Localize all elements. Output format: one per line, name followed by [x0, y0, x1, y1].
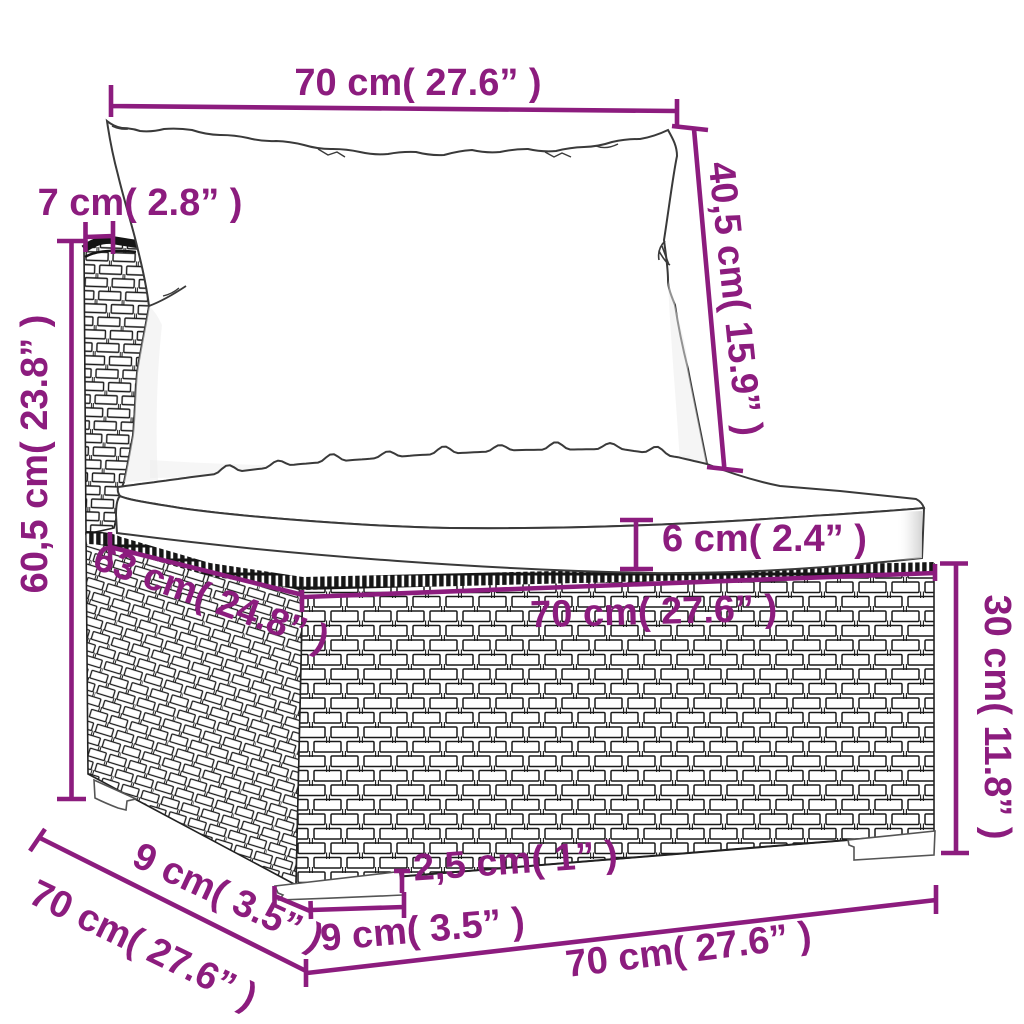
svg-text:6 cm( 2.4” ): 6 cm( 2.4” ) [662, 518, 867, 560]
svg-text:60,5 cm( 23.8” ): 60,5 cm( 23.8” ) [14, 315, 56, 594]
svg-text:70 cm( 27.6” ): 70 cm( 27.6” ) [530, 588, 778, 636]
svg-text:7 cm( 2.8” ): 7 cm( 2.8” ) [38, 182, 243, 224]
svg-text:70 cm( 27.6” ): 70 cm( 27.6” ) [294, 62, 541, 104]
svg-text:30 cm( 11.8” ): 30 cm( 11.8” ) [976, 594, 1018, 839]
